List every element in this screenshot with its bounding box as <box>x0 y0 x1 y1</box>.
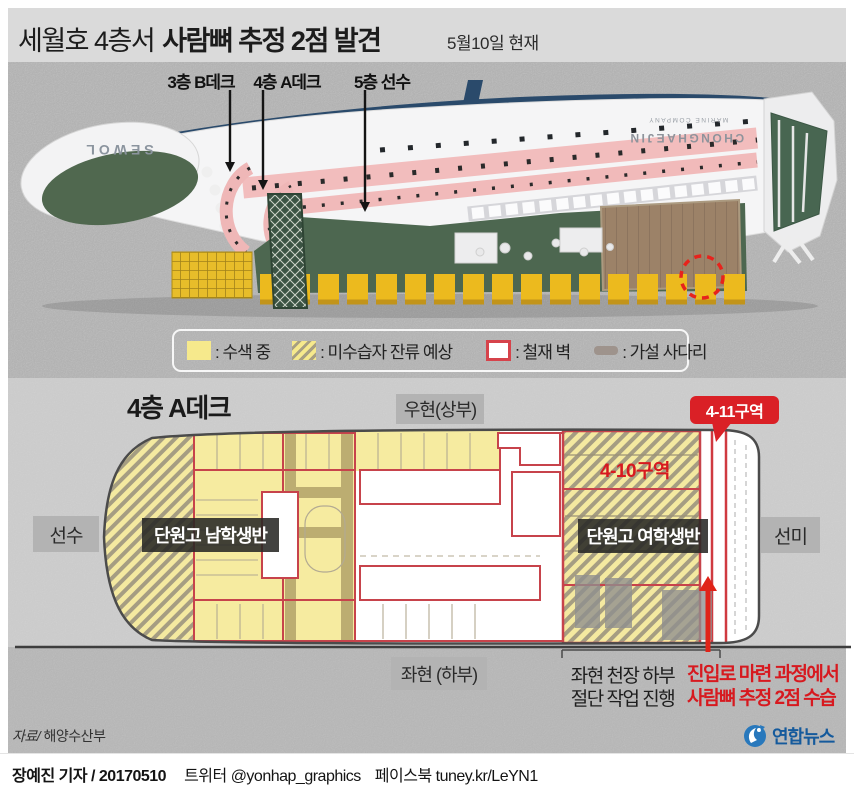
girls-class-label: 단원고 여학생반 <box>578 519 708 553</box>
zone-411-badge: 4-11구역 <box>690 396 779 424</box>
title-regular: 세월호 4층서 <box>18 26 154 56</box>
bow-label: 선수 <box>33 516 99 552</box>
starboard-label: 우현(상부) <box>396 394 484 424</box>
stern-label: 선미 <box>761 517 820 553</box>
date-note: 5월10일 현재 <box>447 29 539 54</box>
twitter-label: 트위터 <box>184 768 231 785</box>
search-zone-top <box>355 431 500 471</box>
boys-class-label: 단원고 남학생반 <box>142 518 279 552</box>
lattice-tower <box>268 194 307 308</box>
facebook-label: 페이스북 <box>375 768 436 785</box>
byline: 장예진 기자 / 20170510트위터 @yonhap_graphics페이스… <box>12 762 538 786</box>
zone-410-label: 4-10구역 <box>585 456 685 483</box>
legend: : 수색 중 : 미수습자 잔류 예상 : 철재 벽 : 가설 사다리 <box>172 329 689 372</box>
reporter-name: 장예진 기자 <box>12 768 87 785</box>
legend-item-remains: : 미수습자 잔류 예상 <box>292 338 452 363</box>
ladder-swatch-icon <box>594 346 618 355</box>
title-bold: 사람뼈 추정 2점 발견 <box>162 26 380 56</box>
agency-logo: 연합뉴스 <box>742 723 834 749</box>
infographic-page: SEWOL CHONGHAEJIN MARINE COMPANY <box>0 0 854 809</box>
plan-title: 4층 A데크 <box>127 388 230 425</box>
source-credit: 자료/ 해양수산부 <box>12 726 105 746</box>
search-swatch-icon <box>187 341 211 360</box>
hull-name-text: SEWOL <box>82 142 153 158</box>
red-outline-swatch-icon <box>486 340 511 361</box>
deck-label-a: 4층 A데크 <box>253 68 320 93</box>
twitter-handle: @yonhap_graphics <box>231 768 361 785</box>
deck-label-bow: 5층 선수 <box>354 68 410 93</box>
yonhap-logo-icon <box>742 723 768 749</box>
legend-item-steel-wall: : 철재 벽 <box>486 338 570 363</box>
agency-name: 연합뉴스 <box>772 723 834 749</box>
hatched-swatch-icon <box>292 341 316 360</box>
support-crates <box>172 252 252 298</box>
page-title: 세월호 4층서사람뼈 추정 2점 발견 <box>18 19 380 58</box>
facebook-url: tuney.kr/LeYN1 <box>436 768 538 785</box>
byline-date: 20170510 <box>99 768 166 785</box>
deck-label-b: 3층 B데크 <box>167 68 234 93</box>
company-name-text: CHONGHAEJIN <box>628 131 744 145</box>
legend-item-ladder: : 가설 사다리 <box>594 338 706 363</box>
bones-annotation: 진입로 마련 과정에서 사람뼈 추정 2점 수습 <box>687 663 854 711</box>
port-label: 좌현 (하부) <box>391 657 487 690</box>
legend-item-searching: : 수색 중 <box>187 338 270 363</box>
cutting-annotation: 좌현 천장 하부 절단 작업 진행 <box>550 665 695 711</box>
company-subname-text: MARINE COMPANY <box>648 116 728 123</box>
deck-house <box>455 233 497 263</box>
